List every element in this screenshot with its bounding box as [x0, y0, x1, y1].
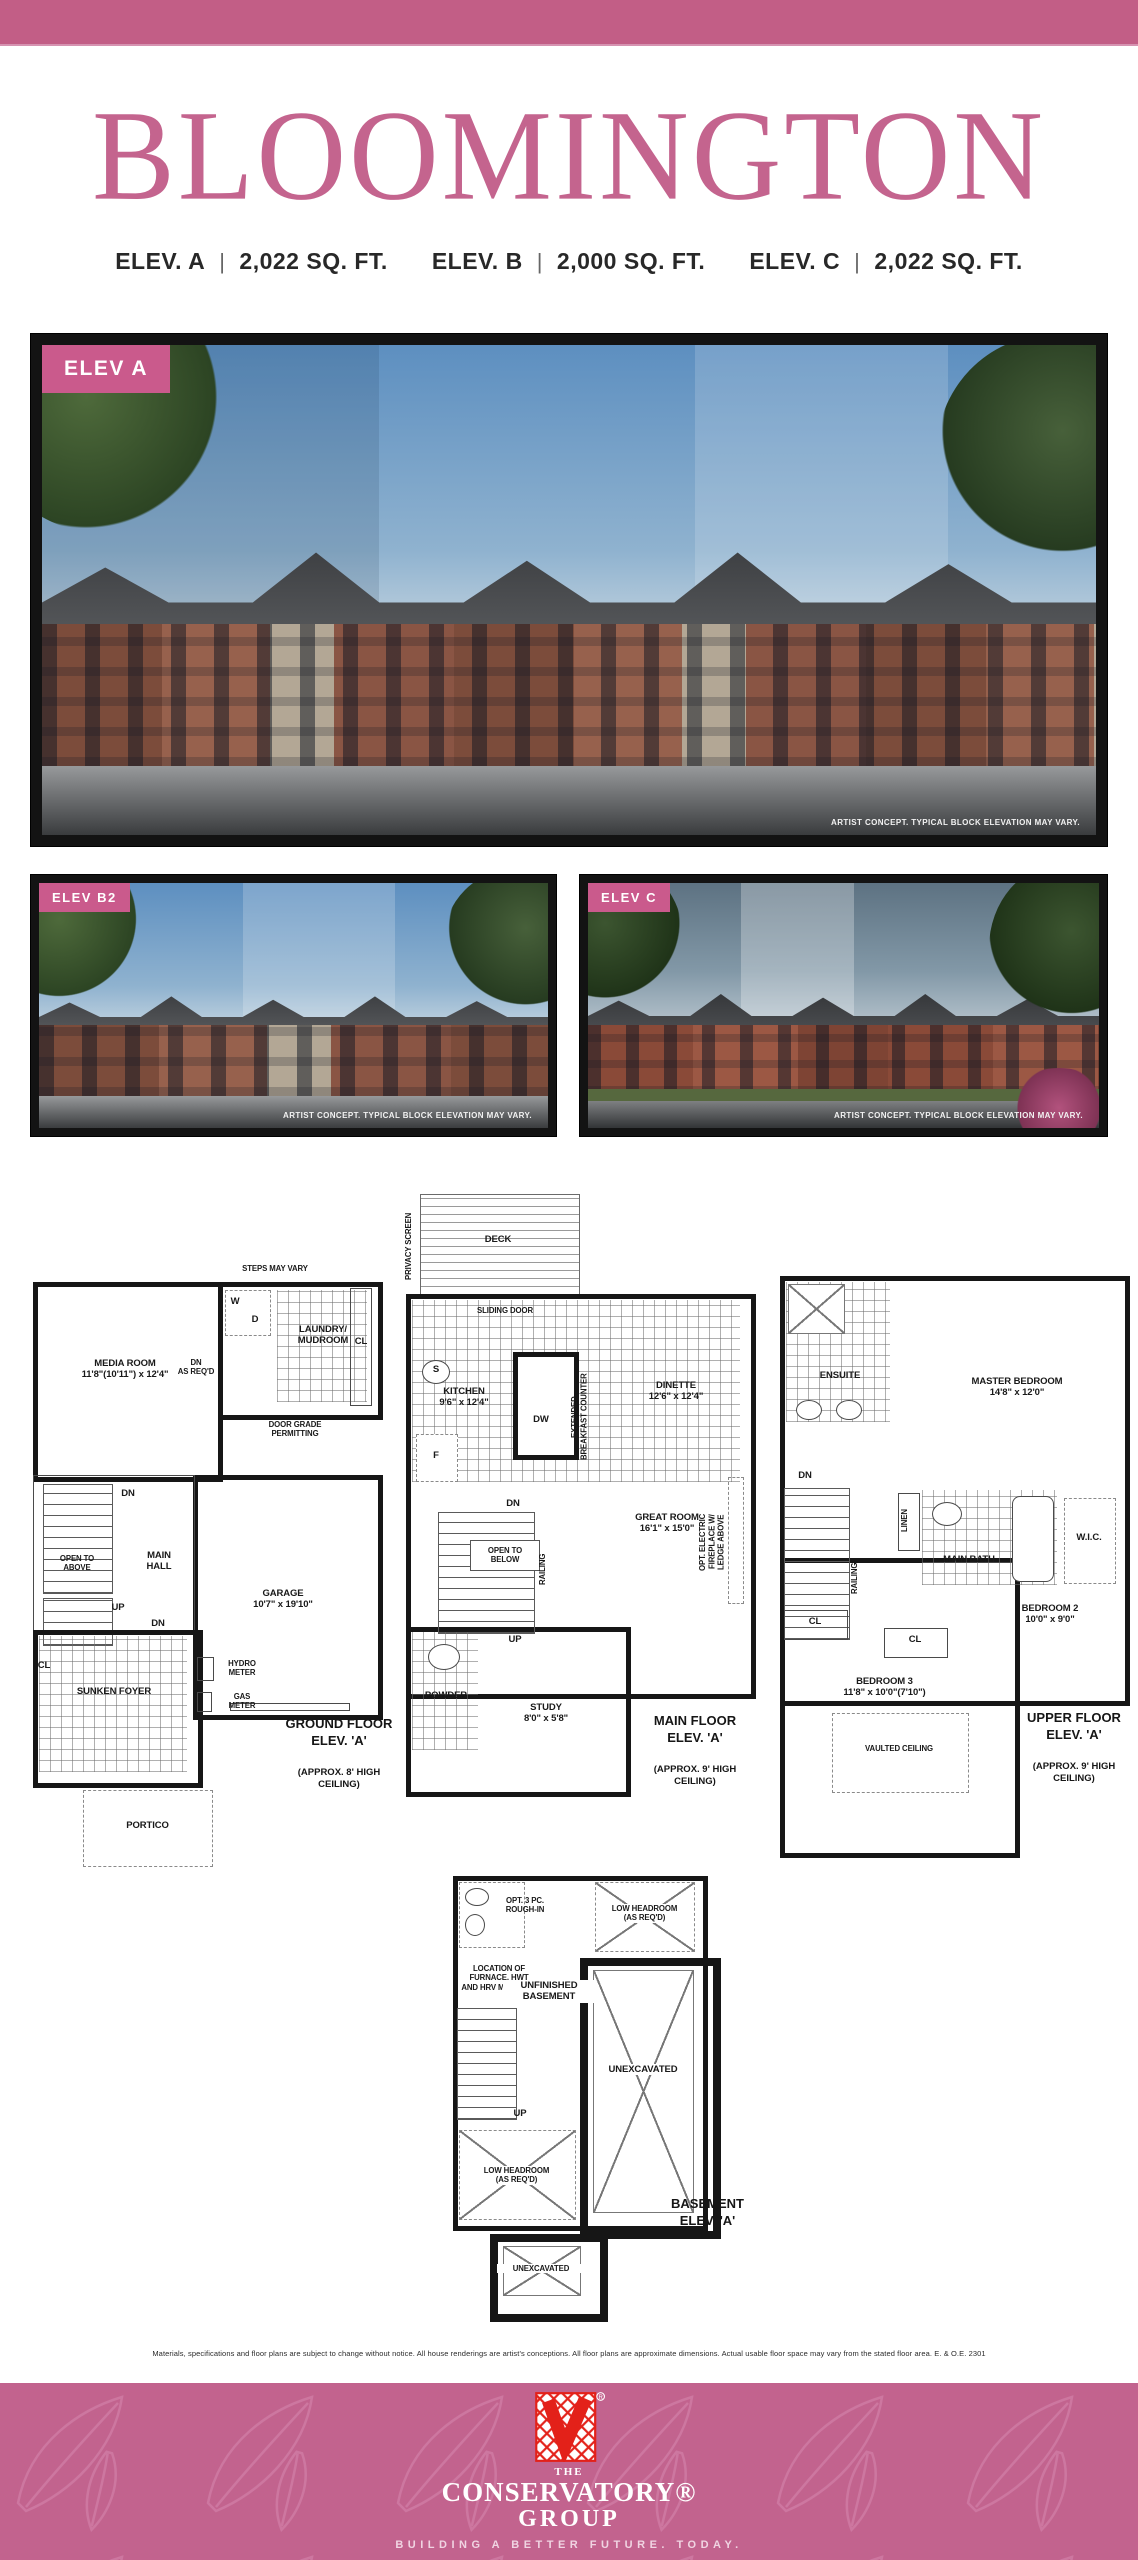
spec-elev-b-sqft: 2,000 SQ. FT.	[557, 248, 705, 275]
label-ensuite: ENSUITE	[800, 1370, 880, 1381]
label-sliding-door: SLIDING DOOR	[450, 1306, 560, 1315]
unexcavated-x	[593, 1970, 694, 2213]
label-master-bedroom: MASTER BEDROOM 14'8" x 12'0"	[932, 1376, 1102, 1399]
rendering-elev-a-image: ARTIST CONCEPT. TYPICAL BLOCK ELEVATION …	[42, 345, 1096, 835]
main-floor-title: MAIN FLOOR ELEV. 'A' (APPROX. 9' HIGH CE…	[636, 1697, 754, 1804]
stairs	[438, 1512, 535, 1634]
brand-tagline: BUILDING A BETTER FUTURE. TODAY.	[395, 2539, 742, 2551]
floorplan-basement: OPT. 3 PC. ROUGH-IN LOW HEADROOM (AS REQ…	[445, 1868, 770, 2338]
spec-divider: |	[854, 249, 860, 275]
label-bedroom2: BEDROOM 2 10'0" x 9'0"	[984, 1603, 1116, 1626]
hydro-meter-box	[197, 1657, 214, 1681]
spec-elev-b-name: ELEV. B	[432, 248, 523, 275]
label-linen: LINEN	[900, 1496, 909, 1546]
page-title: BLOOMINGTON	[0, 85, 1138, 227]
floorplan-upper: ENSUITE MASTER BEDROOM 14'8" x 12'0" DN …	[772, 1258, 1130, 1886]
spec-divider: |	[219, 249, 225, 275]
powder-sink	[428, 1644, 460, 1670]
brand-group: GROUP	[518, 2506, 620, 2532]
label-sink-s: S	[426, 1364, 446, 1375]
label-up: UP	[507, 2108, 533, 2119]
label-cl2: CL	[902, 1634, 928, 1645]
ground-floor-title-text: GROUND FLOOR ELEV. 'A'	[277, 1716, 401, 1749]
media-room-walls	[33, 1282, 223, 1482]
label-unexcavated1: UNEXCAVATED	[595, 2064, 691, 2075]
artist-concept-caption: ARTIST CONCEPT. TYPICAL BLOCK ELEVATION …	[831, 818, 1080, 827]
label-bedroom3: BEDROOM 3 11'8" x 10'0"(7'10")	[802, 1676, 967, 1699]
label-gas-meter: GAS METER	[217, 1692, 267, 1711]
spec-divider: |	[537, 249, 543, 275]
label-railing: RAILING	[538, 1534, 547, 1604]
svg-text:R: R	[598, 2395, 603, 2401]
label-vaulted-ceiling: VAULTED CEILING	[834, 1744, 964, 1753]
gas-meter-box	[197, 1692, 212, 1712]
fireplace-ledge	[728, 1477, 744, 1604]
rendering-elev-c-image: ARTIST CONCEPT. TYPICAL BLOCK ELEVATION …	[588, 883, 1099, 1128]
townhouse-facade	[39, 1025, 548, 1096]
label-powder: POWDER	[412, 1690, 480, 1701]
label-dn1: DN	[113, 1488, 143, 1499]
label-hydro-meter: HYDRO METER	[217, 1659, 267, 1678]
shower	[788, 1284, 845, 1334]
label-unexcavated2: UNEXCAVATED	[497, 2264, 585, 2273]
label-cl1: CL	[802, 1616, 828, 1627]
brand-the: THE	[554, 2466, 583, 2478]
elevation-badge-a: ELEV A	[42, 345, 170, 393]
ground-floor-title: GROUND FLOOR ELEV. 'A' (APPROX. 8' HIGH …	[277, 1700, 401, 1807]
label-low-headroom2: LOW HEADROOM (AS REQ'D)	[469, 2166, 564, 2185]
label-main-bath: MAIN BATH	[924, 1554, 1014, 1565]
label-dn2: DN	[143, 1618, 173, 1629]
label-dn: DN	[790, 1470, 820, 1481]
label-dn-as-reqd: DN AS REQ'D	[171, 1358, 221, 1377]
main-floor-subtitle: (APPROX. 9' HIGH CEILING)	[636, 1764, 754, 1788]
rendering-elev-a: ARTIST CONCEPT. TYPICAL BLOCK ELEVATION …	[30, 333, 1108, 847]
label-fireplace: OPT. ELECTRIC FIREPLACE W/ LEDGE ABOVE	[698, 1482, 726, 1602]
brand-block: R THE CONSERVATORY® GROUP BUILDING A BET…	[0, 2383, 1138, 2560]
artist-concept-caption: ARTIST CONCEPT. TYPICAL BLOCK ELEVATION …	[834, 1111, 1083, 1120]
label-garage: GARAGE 10'7" x 19'10"	[217, 1588, 349, 1611]
basement-title-text: BASEMENT ELEV. 'A'	[650, 2196, 765, 2229]
label-cl2: CL	[33, 1660, 55, 1671]
label-dw: DW	[520, 1414, 562, 1425]
label-kitchen: KITCHEN 9'6" x 12'4"	[416, 1386, 512, 1409]
rendering-elev-b2: ARTIST CONCEPT. TYPICAL BLOCK ELEVATION …	[30, 874, 557, 1137]
townhouse-facade	[42, 624, 1096, 766]
label-dryer: D	[247, 1314, 263, 1325]
artist-concept-caption: ARTIST CONCEPT. TYPICAL BLOCK ELEVATION …	[283, 1111, 532, 1120]
rendering-elev-b2-image: ARTIST CONCEPT. TYPICAL BLOCK ELEVATION …	[39, 883, 548, 1128]
label-up: UP	[103, 1602, 133, 1613]
label-deck: DECK	[458, 1234, 538, 1245]
elevation-badge-c: ELEV C	[588, 883, 670, 912]
label-open-below: OPEN TO BELOW	[470, 1540, 540, 1571]
ground-floor-subtitle: (APPROX. 8' HIGH CEILING)	[277, 1767, 401, 1791]
label-steps-may-vary: STEPS MAY VARY	[210, 1264, 340, 1273]
tub	[1012, 1496, 1054, 1582]
basement-title: BASEMENT ELEV. 'A'	[650, 2180, 765, 2245]
floorplan-ground: STEPS MAY VARY W D LAUNDRY/ MUDROOM CL M…	[25, 1262, 405, 1880]
upper-floor-subtitle: (APPROX. 9' HIGH CEILING)	[1020, 1761, 1128, 1785]
label-portico: PORTICO	[110, 1820, 185, 1831]
label-up: UP	[500, 1634, 530, 1645]
spec-elev-c-sqft: 2,022 SQ. FT.	[874, 248, 1022, 275]
label-low-headroom1: LOW HEADROOM (AS REQ'D)	[597, 1904, 692, 1923]
stairs-up	[43, 1484, 113, 1594]
disclaimer-text: Materials, specifications and floor plan…	[0, 2349, 1138, 2358]
label-dn: DN	[498, 1498, 528, 1509]
label-main-hall: MAIN HALL	[129, 1550, 189, 1573]
label-cl1: CL	[351, 1336, 371, 1347]
label-fridge-f: F	[426, 1450, 446, 1461]
foyer-tile	[39, 1636, 187, 1772]
ensuite-sink1	[796, 1400, 822, 1420]
label-rough-in: OPT. 3 PC. ROUGH-IN	[489, 1896, 561, 1915]
rough-in-sink	[465, 1888, 489, 1906]
upper-floor-title: UPPER FLOOR ELEV. 'A' (APPROX. 9' HIGH C…	[1020, 1694, 1128, 1801]
brand-name: CONSERVATORY®	[442, 2478, 697, 2506]
main-floor-title-text: MAIN FLOOR ELEV. 'A'	[636, 1713, 754, 1746]
spec-elev-c-name: ELEV. C	[749, 248, 840, 275]
upper-floor-title-text: UPPER FLOOR ELEV. 'A'	[1020, 1710, 1128, 1743]
conservatory-logo: R	[533, 2392, 605, 2462]
stairs	[457, 2008, 517, 2120]
label-breakfast-counter: EXTENDED BREAKFAST COUNTER	[570, 1362, 589, 1472]
label-washer: W	[227, 1296, 243, 1307]
rough-in-toilet	[465, 1914, 485, 1936]
top-accent-bar	[0, 0, 1138, 46]
brochure-page: BLOOMINGTON ELEV. A | 2,022 SQ. FT. ELEV…	[0, 0, 1138, 2560]
label-wic: W.I.C.	[1064, 1532, 1114, 1543]
label-railing: RAILING	[850, 1543, 859, 1613]
footer: R THE CONSERVATORY® GROUP BUILDING A BET…	[0, 2383, 1138, 2560]
spec-elev-c: ELEV. C | 2,022 SQ. FT.	[749, 248, 1022, 275]
spec-elev-a-name: ELEV. A	[115, 248, 205, 275]
floorplan-main: PRIVACY SCREEN DECK SLIDING DOOR S KITCH…	[398, 1182, 755, 1870]
spec-elev-b: ELEV. B | 2,000 SQ. FT.	[432, 248, 705, 275]
spec-elev-a-sqft: 2,022 SQ. FT.	[239, 248, 387, 275]
spec-elev-a: ELEV. A | 2,022 SQ. FT.	[115, 248, 388, 275]
label-open-above: OPEN TO ABOVE	[49, 1554, 105, 1573]
rendering-elev-c: ARTIST CONCEPT. TYPICAL BLOCK ELEVATION …	[579, 874, 1108, 1137]
ensuite-sink2	[836, 1400, 862, 1420]
elevation-badge-b2: ELEV B2	[39, 883, 130, 912]
label-unfinished-basement: UNFINISHED BASEMENT	[503, 1980, 595, 2003]
label-dinette: DINETTE 12'6" x 12'4"	[620, 1380, 732, 1403]
elevation-specs: ELEV. A | 2,022 SQ. FT. ELEV. B | 2,000 …	[0, 248, 1138, 275]
label-study: STUDY 8'0" x 5'8"	[490, 1702, 602, 1725]
label-sunken-foyer: SUNKEN FOYER	[59, 1686, 169, 1697]
bath-sink	[932, 1502, 962, 1526]
label-door-grade: DOOR GRADE PERMITTING	[240, 1420, 350, 1439]
label-privacy-screen: PRIVACY SCREEN	[404, 1204, 413, 1288]
